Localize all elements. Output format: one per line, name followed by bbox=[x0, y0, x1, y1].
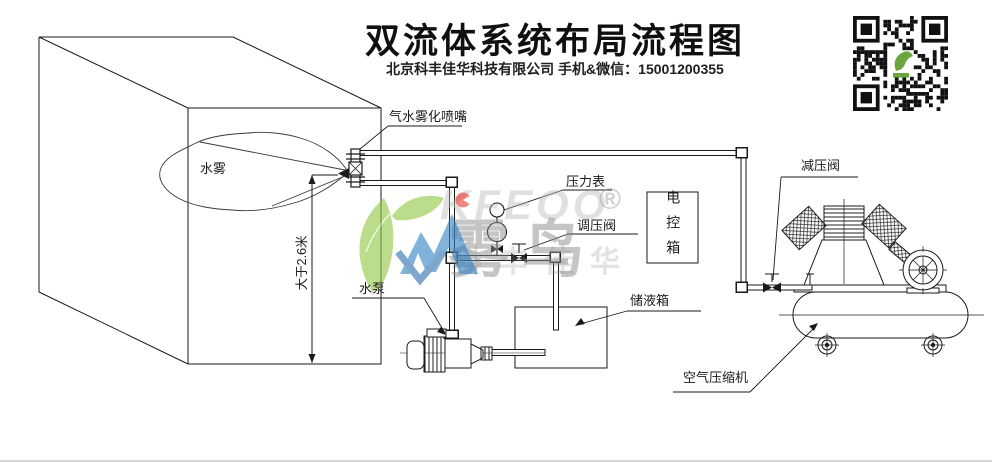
label-control-box: 电控箱 bbox=[647, 192, 698, 263]
label-min-height: 大于2.6米 bbox=[296, 223, 310, 303]
label-reducing-valve: 减压阀 bbox=[801, 159, 840, 173]
label-water-mist: 水雾 bbox=[200, 162, 226, 176]
leader-nozzle bbox=[360, 126, 462, 149]
page-subtitle: 北京科丰佳华科技有限公司 手机&微信：15001200355 bbox=[332, 59, 778, 79]
label-water-pump: 水泵 bbox=[359, 282, 385, 296]
pressure-gauge-assembly bbox=[488, 203, 507, 255]
storage-tank bbox=[515, 307, 607, 368]
page-title: 双流体系统布局流程图 bbox=[332, 13, 778, 64]
leader-water-pump bbox=[352, 298, 445, 333]
qr-code-pattern bbox=[853, 16, 948, 111]
label-air-compressor: 空气压缩机 bbox=[683, 371, 748, 385]
flow-diagram-page: KFEOO 雾鸟 ® 科丰佳华 双流体系统布局流程图 北京科丰佳华科技有限公司 … bbox=[0, 0, 992, 462]
label-storage-tank: 储液箱 bbox=[630, 294, 669, 308]
leader-regulating-valve bbox=[524, 234, 638, 250]
room-box bbox=[39, 37, 381, 364]
pressure-gauge-dial bbox=[490, 203, 504, 217]
label-regulating-valve: 调压阀 bbox=[577, 219, 616, 233]
leader-pressure-gauge bbox=[504, 190, 612, 210]
spray-line-lower bbox=[272, 176, 345, 206]
dimension-line bbox=[309, 175, 339, 363]
qr-leaf-logo-icon bbox=[895, 51, 913, 71]
label-atomizing-nozzle: 气水雾化喷嘴 bbox=[389, 110, 467, 124]
compressor-cylinder-right bbox=[862, 204, 906, 247]
label-pressure-gauge: 压力表 bbox=[566, 175, 605, 189]
compressor-cylinder-left bbox=[782, 206, 826, 249]
wechat-qr-code bbox=[853, 16, 948, 111]
